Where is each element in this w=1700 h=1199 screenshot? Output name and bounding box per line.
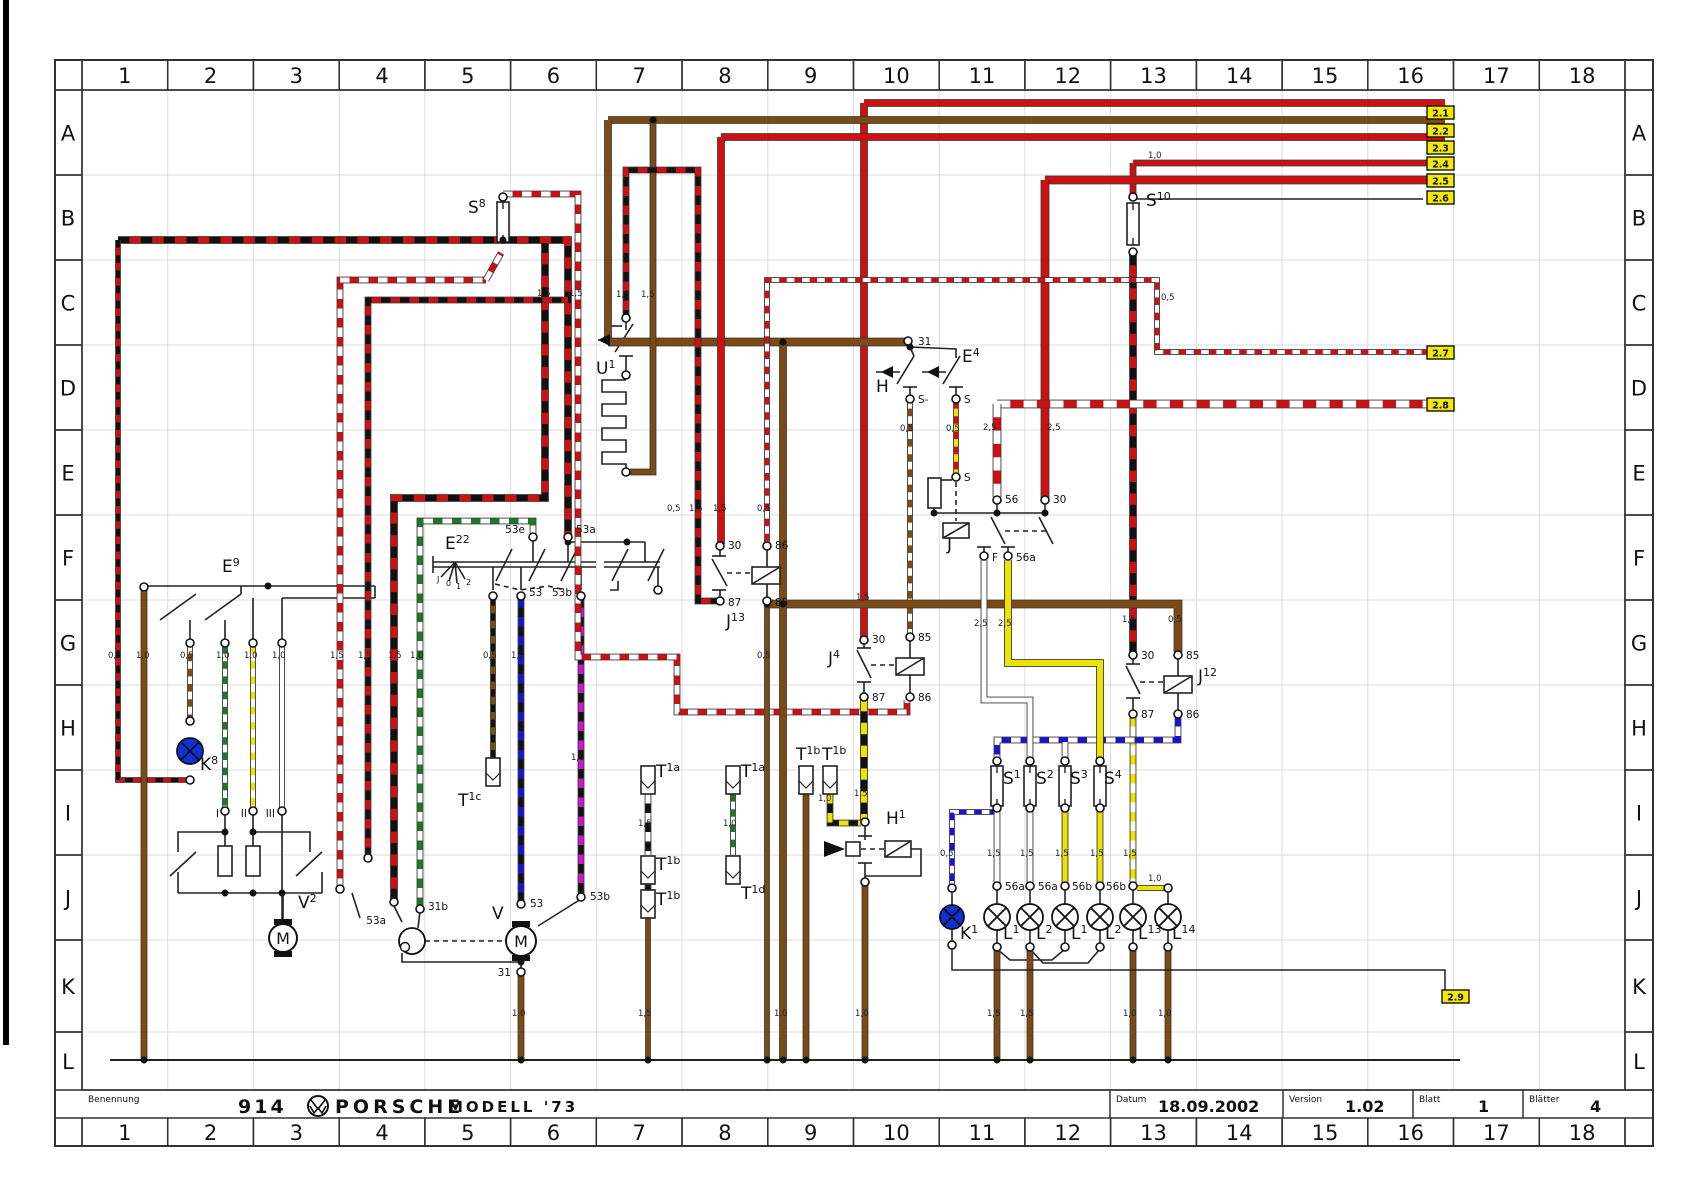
motor-letter: M <box>276 929 290 948</box>
junction-dot <box>931 510 938 517</box>
wire-gauge-label: 1,0 <box>136 651 150 661</box>
wire-gauge-label: 0,5 <box>108 651 122 661</box>
column-header-label: 17 <box>1483 64 1510 88</box>
terminal <box>906 633 914 641</box>
wire-gauge-label: 1,5 <box>616 290 630 300</box>
datum-label: Datum <box>1116 1095 1146 1105</box>
blatt-value: 1 <box>1478 1097 1489 1116</box>
column-footer-label: 11 <box>969 1121 996 1145</box>
terminal-label: I <box>216 808 219 820</box>
terminal-label: 31b <box>428 901 448 913</box>
terminal-label: 30 <box>1141 650 1154 662</box>
terminal <box>952 395 960 403</box>
terminal-label: 86 <box>1186 709 1200 721</box>
wire-gauge-label: 1,5 <box>987 1009 1001 1019</box>
wire-gauge-label: 0,5 <box>483 651 497 661</box>
datum-value: 18.09.2002 <box>1158 1097 1259 1116</box>
terminal <box>416 905 424 913</box>
wire-gauge-label: 2,5 <box>974 619 988 629</box>
wire-gauge-label: 1,5 <box>638 819 652 829</box>
wire-gauge-label: 1,0 <box>511 651 525 661</box>
terminal <box>860 693 868 701</box>
column-footer-label: 2 <box>204 1121 217 1145</box>
terminal <box>249 807 257 815</box>
terminal <box>529 533 537 541</box>
junction-dot <box>994 510 1001 517</box>
terminal-label: 85 <box>1186 650 1199 662</box>
wire-gauge-label: 1,5 <box>689 504 703 514</box>
row-header-label: E <box>61 462 74 486</box>
sheet-reference-label: 2.4 <box>1432 160 1449 171</box>
row-header-label: G <box>1631 632 1647 656</box>
terminal-label: 85 <box>918 632 931 644</box>
logo-porsche: PORSCHE <box>335 1096 464 1118</box>
terminal-label: 53a <box>576 524 596 536</box>
logo-914: 914 <box>238 1096 287 1118</box>
row-header-label: F <box>1633 547 1645 571</box>
terminal-label: 53b <box>590 891 610 903</box>
row-header-label: K <box>1632 975 1647 999</box>
wire-gauge-label: 0,5 <box>757 651 771 661</box>
column-footer-label: 8 <box>718 1121 731 1145</box>
terminal-label: III <box>266 808 275 820</box>
column-header-label: 6 <box>547 64 560 88</box>
terminal-label: 30 <box>728 540 741 552</box>
terminal <box>993 882 1001 890</box>
terminal <box>904 337 912 345</box>
terminal <box>278 807 286 815</box>
wire-gauge-label: 1,0 <box>774 1009 788 1019</box>
terminal <box>1096 882 1104 890</box>
terminal <box>577 893 585 901</box>
terminal <box>517 592 525 600</box>
row-header-label: J <box>1634 887 1642 911</box>
wire-gauge-label: 1,0 <box>1123 1009 1137 1019</box>
junction-dot <box>500 237 507 244</box>
wire-gauge-label: 1,5 <box>569 289 583 299</box>
terminal-label: 31 <box>918 336 931 348</box>
wire-gauge-label: 1,0 <box>723 819 737 829</box>
wire-gauge-label: 1,0 <box>410 651 424 661</box>
terminal <box>364 854 372 862</box>
terminal <box>993 496 1001 504</box>
row-header-label: H <box>60 717 76 741</box>
terminal-label: 56 <box>1005 494 1019 506</box>
wire-gauge-label: 0,5 <box>667 504 681 514</box>
row-header-label: A <box>61 122 76 146</box>
terminal <box>1174 710 1182 718</box>
terminal <box>861 878 869 886</box>
terminal <box>861 818 869 826</box>
terminal <box>1061 882 1069 890</box>
column-footer-label: 4 <box>375 1121 388 1145</box>
wire-gauge-label: 1,0 <box>272 651 286 661</box>
terminal-label: 56b <box>1072 881 1092 893</box>
motor-letter: M <box>514 932 528 951</box>
column-header-label: 7 <box>632 64 645 88</box>
wire-gauge-label: 1,5 <box>854 789 868 799</box>
terminal <box>1004 552 1012 560</box>
terminal <box>906 693 914 701</box>
terminal <box>249 639 257 647</box>
diagram-canvas: 1122334455667788991010111112121313141415… <box>0 0 1700 1199</box>
wire-gauge-label: 1,5 <box>1123 849 1137 859</box>
resistor-box <box>846 842 860 856</box>
wire-gauge-label: 1,5 <box>1020 849 1034 859</box>
terminal-label: 53 <box>529 587 542 599</box>
version-label: Version <box>1289 1095 1322 1105</box>
connector <box>726 766 740 794</box>
terminal-label: 53e <box>505 524 525 536</box>
row-header-label: J <box>63 887 71 911</box>
terminal <box>1129 193 1137 201</box>
junction-dot <box>250 890 257 897</box>
terminal <box>489 592 497 600</box>
terminal-label: 86 <box>775 540 789 552</box>
terminal <box>1061 757 1069 765</box>
junction-dot <box>624 539 631 546</box>
terminal <box>993 943 1001 951</box>
wire-gauge-label: 1,0 <box>1158 1009 1172 1019</box>
column-header-label: 11 <box>969 64 996 88</box>
resistor-box <box>246 846 260 876</box>
row-header-label: I <box>1636 802 1642 826</box>
terminal-label: 30 <box>1053 494 1066 506</box>
terminal-label: II <box>241 808 247 820</box>
column-footer-label: 16 <box>1397 1121 1424 1145</box>
terminal <box>278 639 286 647</box>
terminal <box>186 776 194 784</box>
terminal <box>948 884 956 892</box>
terminal <box>1174 651 1182 659</box>
terminal-label: 53b <box>552 587 572 599</box>
terminal <box>860 636 868 644</box>
junction-dot <box>650 117 657 124</box>
wire-gauge-label: 1,0 <box>512 1009 526 1019</box>
row-header-label: C <box>61 292 76 316</box>
row-header-label: A <box>1632 122 1647 146</box>
connector <box>641 890 655 918</box>
wire-gauge-label: 2,5 <box>983 423 997 433</box>
terminal <box>577 592 585 600</box>
wire-gauge-label: 1,5 <box>388 651 402 661</box>
connector <box>486 758 500 786</box>
wire-gauge-label: 1,5 <box>856 593 870 603</box>
junction-dot <box>1042 510 1049 517</box>
terminal <box>140 583 148 591</box>
terminal <box>221 807 229 815</box>
terminal <box>763 542 771 550</box>
column-header-label: 2 <box>204 64 217 88</box>
column-footer-label: 13 <box>1140 1121 1167 1145</box>
terminal <box>980 552 988 560</box>
wire-gauge-label: 1,5 <box>987 849 1001 859</box>
terminal-label: 87 <box>1141 709 1154 721</box>
terminal <box>336 885 344 893</box>
wire-gauge-label: 1,5 <box>713 504 727 514</box>
sheet-reference-label: 2.1 <box>1432 109 1449 120</box>
row-header-label: B <box>1632 207 1646 231</box>
terminal-label: 85 <box>775 597 788 609</box>
connector <box>726 856 740 884</box>
terminal-label: 56b <box>1106 881 1126 893</box>
junction-dot <box>1165 1057 1172 1064</box>
terminal <box>186 639 194 647</box>
terminal-label: 53 <box>530 898 543 910</box>
terminal <box>1096 943 1104 951</box>
terminal <box>186 717 194 725</box>
terminal <box>763 597 771 605</box>
wire-gauge-label: 0,5 <box>946 424 960 434</box>
wire-gauge-label: 1,5 <box>1090 849 1104 859</box>
blatt-label: Blatt <box>1419 1095 1441 1105</box>
terminal-label: 30 <box>872 634 885 646</box>
junction-dot <box>265 583 272 590</box>
terminal-label: 56a <box>1005 881 1025 893</box>
sheet-reference-label: 2.2 <box>1432 127 1449 138</box>
column-footer-label: 7 <box>632 1121 645 1145</box>
terminal-label: 87 <box>728 597 741 609</box>
column-footer-label: 12 <box>1054 1121 1081 1145</box>
wire-gauge-label: 1,0 <box>1148 151 1162 161</box>
column-footer-label: 9 <box>804 1121 817 1145</box>
terminal-label: 56a <box>1016 552 1036 564</box>
junction-dot <box>250 829 257 836</box>
wire-gauge-label: 1,0 <box>1148 874 1162 884</box>
component-label: V <box>492 904 504 924</box>
wire-gauge-label: 1,5 <box>1055 849 1069 859</box>
row-header-label: D <box>1631 377 1647 401</box>
component-label: J <box>946 535 952 555</box>
terminal <box>952 473 960 481</box>
column-footer-label: 1 <box>118 1121 131 1145</box>
terminal <box>716 542 724 550</box>
column-header-label: 15 <box>1312 64 1339 88</box>
terminal <box>1164 884 1172 892</box>
terminal <box>1129 943 1137 951</box>
component-label: H <box>876 377 889 397</box>
junction-dot <box>862 1057 869 1064</box>
junction-dot <box>222 890 229 897</box>
row-header-label: L <box>1633 1050 1645 1074</box>
junction-dot <box>141 1057 148 1064</box>
wire-gauge-label: 0,5 <box>1161 293 1175 303</box>
column-header-label: 12 <box>1054 64 1081 88</box>
terminal <box>993 804 1001 812</box>
benennung-label: Benennung <box>88 1095 139 1105</box>
column-footer-label: 14 <box>1226 1121 1253 1145</box>
column-footer-label: 18 <box>1569 1121 1596 1145</box>
column-footer-label: 15 <box>1312 1121 1339 1145</box>
version-value: 1.02 <box>1345 1097 1384 1116</box>
washer-pump-inner <box>401 943 410 952</box>
terminal <box>1026 943 1034 951</box>
terminal <box>716 597 724 605</box>
wire-gauge-label: 0,5 <box>1168 615 1182 625</box>
wire-gauge-label: 1,5 <box>1122 615 1136 625</box>
wire-gauge-label: 2,5 <box>1047 423 1061 433</box>
junction-dot <box>994 1057 1001 1064</box>
terminal <box>622 468 630 476</box>
column-header-label: 13 <box>1140 64 1167 88</box>
junction-dot <box>764 1057 771 1064</box>
connector <box>641 856 655 884</box>
column-footer-label: 17 <box>1483 1121 1510 1145</box>
scan-edge-bar <box>3 0 9 1045</box>
wire-gauge-label: 1,5 <box>358 651 372 661</box>
column-header-label: 16 <box>1397 64 1424 88</box>
terminal <box>622 314 630 322</box>
junction-dot <box>222 829 229 836</box>
terminal <box>906 395 914 403</box>
terminal <box>564 533 572 541</box>
junction-dot <box>1027 1057 1034 1064</box>
column-footer-label: 5 <box>461 1121 474 1145</box>
wire-gauge-label: 1,5 <box>638 1009 652 1019</box>
wire-gauge-label: 1,0 <box>571 753 585 763</box>
row-header-label: H <box>1631 717 1647 741</box>
terminal <box>517 900 525 908</box>
column-header-label: 1 <box>118 64 131 88</box>
column-header-label: 5 <box>461 64 474 88</box>
junction-dot <box>780 1057 787 1064</box>
switch-position-label: 0 <box>446 579 451 588</box>
terminal <box>1061 804 1069 812</box>
row-header-label: G <box>60 632 76 656</box>
terminal <box>1096 804 1104 812</box>
resistor-box <box>218 846 232 876</box>
terminal <box>1026 804 1034 812</box>
terminal <box>622 371 630 379</box>
wire-gauge-label: 0,5 <box>180 651 194 661</box>
terminal <box>654 586 662 594</box>
sheet-reference-label: 2.3 <box>1432 144 1449 155</box>
terminal <box>390 898 398 906</box>
wire-gauge-label: 0,5 <box>757 504 771 514</box>
junction-dot <box>1130 1057 1137 1064</box>
wire-gauge-label: 1,0 <box>244 651 258 661</box>
switch-position-label: 2 <box>466 578 471 587</box>
wire-gauge-label: 1,0 <box>818 794 832 804</box>
sheet-reference-label: 2.5 <box>1432 177 1449 188</box>
wire-gauge-label: 1,5 <box>641 290 655 300</box>
terminal <box>517 968 525 976</box>
terminal <box>1096 757 1104 765</box>
junction-dot <box>780 339 787 346</box>
logo-modell: MODELL '73 <box>448 1098 578 1116</box>
sheet-reference-label: 2.6 <box>1432 194 1449 205</box>
junction-dot <box>279 890 286 897</box>
blaetter-label: Blätter <box>1529 1095 1560 1105</box>
sheet-reference-label: 2.8 <box>1432 401 1449 412</box>
terminal <box>1129 248 1137 256</box>
column-header-label: 14 <box>1226 64 1253 88</box>
row-header-label: B <box>61 207 75 231</box>
wire-gauge-label: 1,5 <box>1020 1009 1034 1019</box>
switch-position-label: J <box>436 575 439 584</box>
junction-dot <box>803 1057 810 1064</box>
junction-dot <box>645 1057 652 1064</box>
row-header-label: C <box>1632 292 1647 316</box>
column-header-label: 4 <box>375 64 388 88</box>
terminal-label: F <box>992 552 998 564</box>
wire-gauge-label: 1,5 <box>537 289 551 299</box>
terminal <box>221 639 229 647</box>
connector <box>823 766 837 794</box>
row-header-label: I <box>65 802 71 826</box>
terminal-label: 31 <box>498 967 511 979</box>
terminal <box>1026 882 1034 890</box>
wire-gauge-label: 1,0 <box>855 1009 869 1019</box>
wire-gauge-label: 2,5 <box>998 619 1012 629</box>
column-footer-label: 3 <box>290 1121 303 1145</box>
column-footer-label: 10 <box>883 1121 910 1145</box>
row-header-label: D <box>60 377 76 401</box>
sheet-reference-label: 2.7 <box>1432 349 1449 360</box>
terminal <box>1026 757 1034 765</box>
terminal-label: 87 <box>872 692 885 704</box>
wire-gauge-label: 1,5 <box>330 651 344 661</box>
wire-gauge-label: 1,0 <box>216 651 230 661</box>
wire-gauge-label: 0,5 <box>900 424 914 434</box>
sheet-reference-label: 2.9 <box>1447 993 1464 1004</box>
row-header-label: F <box>62 547 74 571</box>
connector <box>641 766 655 794</box>
terminal-label: 86 <box>918 692 932 704</box>
column-footer-label: 6 <box>547 1121 560 1145</box>
row-header-label: K <box>61 975 76 999</box>
terminal <box>1041 496 1049 504</box>
column-header-label: 18 <box>1569 64 1596 88</box>
terminal-label: 53a <box>366 915 386 927</box>
terminal-label: 56a <box>1038 881 1058 893</box>
terminal <box>1164 943 1172 951</box>
junction-dot <box>518 1057 525 1064</box>
terminal <box>1129 651 1137 659</box>
terminal <box>948 941 956 949</box>
column-header-label: 9 <box>804 64 817 88</box>
wiring-diagram-page: MODELL '73 11223344556677889910101111121… <box>0 0 1700 1199</box>
terminal <box>1061 943 1069 951</box>
switch-position-label: 1 <box>456 582 461 591</box>
row-header-label: E <box>1632 462 1645 486</box>
blaetter-value: 4 <box>1590 1097 1601 1116</box>
terminal-label: S <box>964 472 971 484</box>
terminal <box>993 757 1001 765</box>
terminal <box>1129 882 1137 890</box>
row-header-label: L <box>62 1050 74 1074</box>
column-header-label: 10 <box>883 64 910 88</box>
terminal-label: S <box>964 394 971 406</box>
resistor-box <box>928 478 941 508</box>
column-header-label: 3 <box>290 64 303 88</box>
column-header-label: 8 <box>718 64 731 88</box>
terminal-label: S- <box>918 394 929 406</box>
connector <box>799 766 813 794</box>
terminal <box>499 193 507 201</box>
terminal <box>1129 710 1137 718</box>
wire-gauge-label: 0,5 <box>940 849 954 859</box>
